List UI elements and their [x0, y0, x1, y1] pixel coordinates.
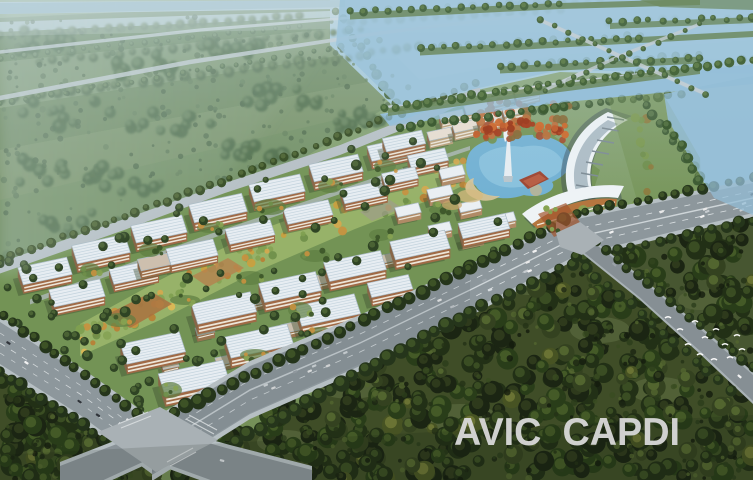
svg-text:AVIC CAPDI: AVIC CAPDI: [454, 411, 680, 454]
